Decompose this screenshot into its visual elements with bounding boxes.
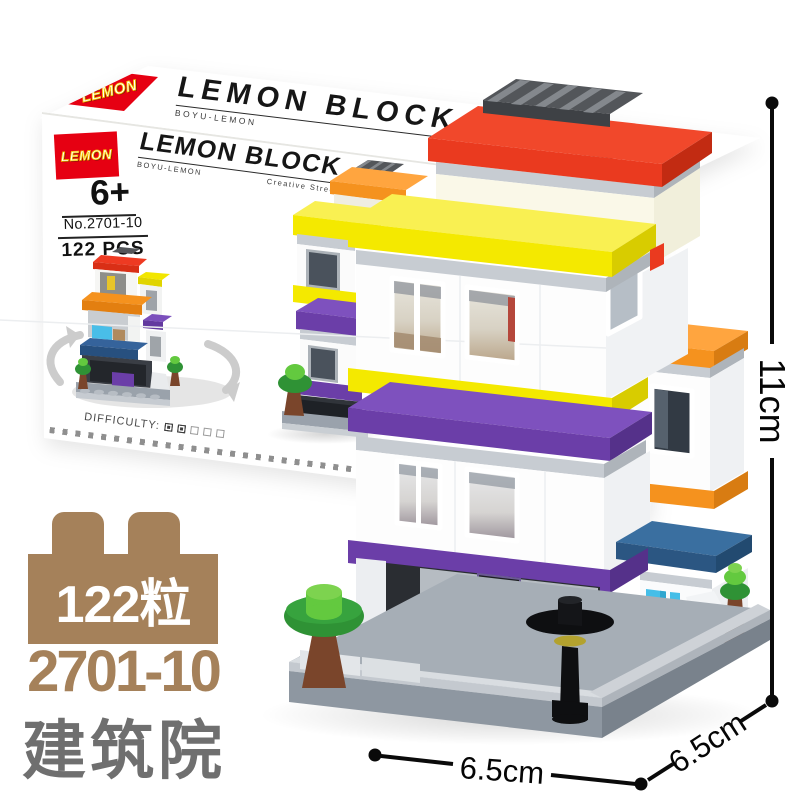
width-label: 6.5cm xyxy=(459,750,546,791)
piece-count-text: 122粒 xyxy=(56,562,191,637)
product-name: 建筑院 xyxy=(8,700,240,792)
window xyxy=(397,461,440,528)
model-number-badge: 2701-10 xyxy=(14,638,232,705)
piece-count-badge: 122粒 xyxy=(28,512,218,644)
window xyxy=(467,469,517,541)
brick-stud xyxy=(128,512,180,560)
brick-body: 122粒 xyxy=(28,554,218,644)
window xyxy=(467,287,517,363)
brick-stud xyxy=(52,512,104,560)
dimension-width: 6.5cm xyxy=(369,749,648,791)
product-image: LEMON LEMON BLOCK BOYU-LEMON Creative St… xyxy=(0,0,800,800)
height-label: 11cm xyxy=(752,358,793,443)
window xyxy=(392,278,443,356)
